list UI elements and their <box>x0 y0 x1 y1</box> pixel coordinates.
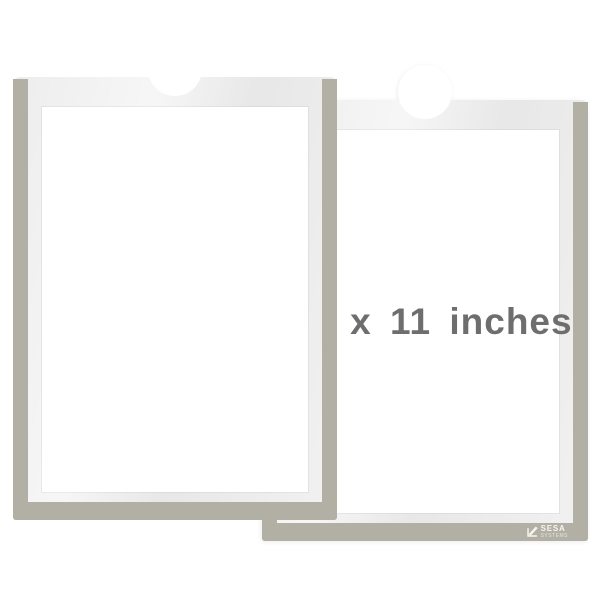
blank-paper-insert-back <box>42 107 308 492</box>
brand-logo-text: SESA SYSTEMS <box>541 525 568 539</box>
brand-subname: SYSTEMS <box>541 534 568 539</box>
thumb-notch-front-icon <box>398 65 452 119</box>
frame-right-strip-front <box>573 102 588 541</box>
product-scene: 8.5 x 11 inches SESA SYSTEMS <box>0 0 600 600</box>
brand-name: SESA <box>541 525 568 533</box>
sesa-pencil-check-icon <box>526 525 539 538</box>
frame-left-strip-back <box>13 79 28 520</box>
thumb-notch-back-icon <box>148 42 202 96</box>
frame-right-strip-back <box>322 79 337 520</box>
brand-logo: SESA SYSTEMS <box>526 524 568 539</box>
frame-bottom-bar-back <box>13 502 337 520</box>
document-holder-back <box>13 77 337 520</box>
